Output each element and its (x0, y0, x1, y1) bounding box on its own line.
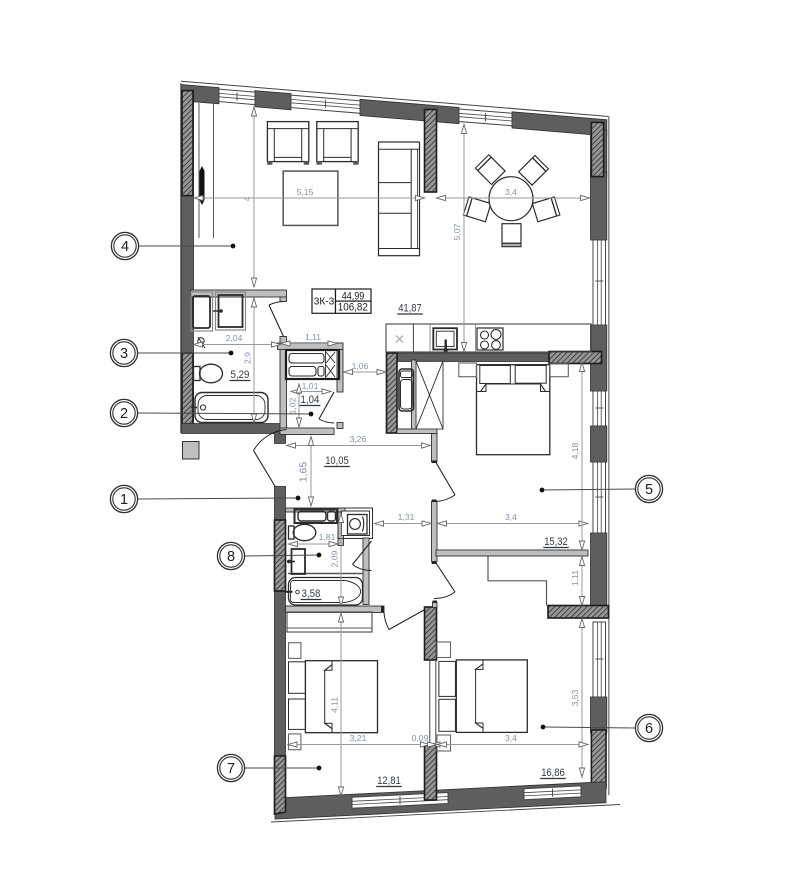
svg-text:41,87: 41,87 (398, 303, 422, 315)
svg-text:15,32: 15,32 (544, 536, 568, 548)
svg-text:2,9: 2,9 (243, 352, 253, 364)
svg-text:1,81: 1,81 (319, 532, 336, 542)
svg-text:3,26: 3,26 (350, 434, 367, 444)
svg-text:3,4: 3,4 (505, 512, 517, 522)
svg-text:4: 4 (242, 196, 252, 201)
svg-text:3,53: 3,53 (570, 689, 580, 706)
svg-text:16,86: 16,86 (541, 767, 565, 779)
svg-text:1,06: 1,06 (352, 361, 369, 371)
svg-text:106,82: 106,82 (338, 302, 368, 314)
svg-text:7: 7 (227, 761, 235, 777)
svg-text:5: 5 (645, 482, 653, 498)
svg-text:1,11: 1,11 (305, 332, 321, 342)
svg-text:3,21: 3,21 (350, 733, 367, 743)
svg-text:3,4: 3,4 (505, 733, 517, 743)
svg-text:10,05: 10,05 (325, 455, 349, 467)
svg-text:1,11: 1,11 (570, 570, 580, 586)
svg-text:2,04: 2,04 (226, 333, 243, 343)
svg-text:4: 4 (121, 239, 129, 255)
svg-text:8: 8 (227, 549, 235, 565)
svg-text:1,04: 1,04 (301, 394, 320, 406)
svg-text:3: 3 (120, 346, 128, 362)
svg-text:1,02: 1,02 (288, 397, 298, 414)
svg-text:2,09: 2,09 (330, 550, 340, 567)
svg-text:5,07: 5,07 (452, 223, 462, 240)
svg-text:1: 1 (120, 492, 128, 508)
svg-text:3К-3: 3К-3 (314, 296, 335, 308)
svg-text:12,81: 12,81 (377, 775, 401, 787)
svg-text:5,29: 5,29 (231, 369, 250, 381)
svg-text:3,4: 3,4 (505, 187, 517, 197)
svg-text:5,15: 5,15 (297, 187, 314, 197)
svg-text:44,99: 44,99 (342, 290, 365, 302)
svg-text:6: 6 (645, 721, 653, 737)
svg-text:4,18: 4,18 (570, 442, 580, 459)
svg-text:4,11: 4,11 (330, 697, 340, 713)
svg-text:1,65: 1,65 (298, 462, 310, 483)
svg-text:1,01: 1,01 (302, 381, 319, 391)
svg-text:0,09: 0,09 (412, 733, 429, 743)
svg-text:1,31: 1,31 (398, 512, 415, 522)
svg-text:2: 2 (120, 406, 128, 422)
svg-text:3,58: 3,58 (302, 588, 321, 600)
